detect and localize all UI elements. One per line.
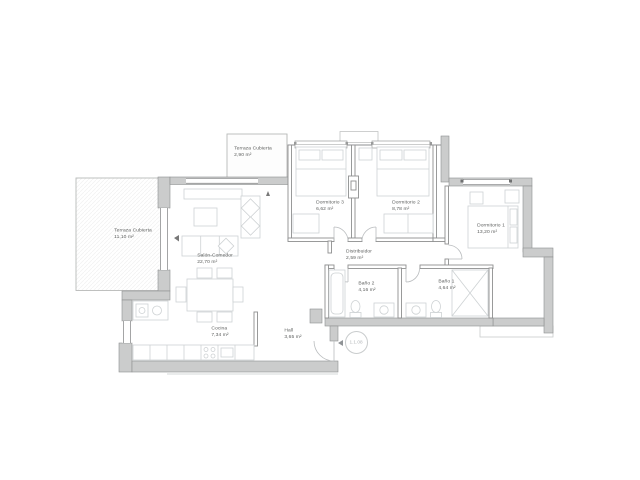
sink-icon xyxy=(374,303,394,317)
room-label-dormitorio-2: Dormitorio 2 8,78 m² xyxy=(392,199,420,213)
toilet-icon xyxy=(350,301,361,318)
floor-plan-page: Terraza Cubierta 2,90 m² Terraza Cubiert… xyxy=(0,0,640,480)
shower-icon xyxy=(452,270,488,316)
room-label-dormitorio-3: Dormitorio 3 6,62 m² xyxy=(316,199,344,213)
bed-icon xyxy=(296,147,346,196)
sink-icon xyxy=(406,303,426,317)
room-label-bano-1: Baño 1 4,64 m² xyxy=(438,278,455,292)
coffee-table-icon xyxy=(194,208,217,226)
window-direction-icon xyxy=(174,235,179,242)
floor-plan-drawing xyxy=(0,0,640,480)
room-label-bano-2: Baño 2 4,16 m² xyxy=(358,280,375,294)
wardrobe-icon xyxy=(384,214,433,233)
room-label-distribuidor: Distribuidor 2,59 m² xyxy=(346,248,372,262)
nightstand-icon xyxy=(505,190,519,203)
wardrobe-icon xyxy=(293,214,319,233)
room-label-hall: Hall 3,65 m² xyxy=(284,327,301,341)
room-label-dormitorio-1: Dormitorio 1 13,20 m² xyxy=(477,222,505,236)
nightstand-icon xyxy=(359,148,372,160)
unit-entry-marker: 1.1.08 xyxy=(338,331,368,354)
room-label-salon-comedor: Salón-Comedor 22,70 m² xyxy=(197,252,233,266)
sideboard-icon xyxy=(184,189,242,199)
room-label-terraza-cubierta-top: Terraza Cubierta 2,90 m² xyxy=(234,145,272,159)
dining-table-icon xyxy=(176,268,243,322)
north-arrow-icon xyxy=(266,191,270,196)
bed-icon xyxy=(377,147,429,196)
unit-code: 1.1.08 xyxy=(350,340,363,345)
entry-arrow-icon xyxy=(338,340,343,346)
lounge-chairs-icon xyxy=(241,196,260,238)
room-label-cocina: Cocina 7,34 m² xyxy=(211,325,228,339)
toilet-icon xyxy=(431,301,442,318)
room-label-terraza-cubierta-left: Terraza Cubierta 11,10 m² xyxy=(114,227,152,241)
unit-code-badge: 1.1.08 xyxy=(345,331,368,354)
bathtub-icon xyxy=(329,270,345,317)
nightstand-icon xyxy=(470,192,483,204)
